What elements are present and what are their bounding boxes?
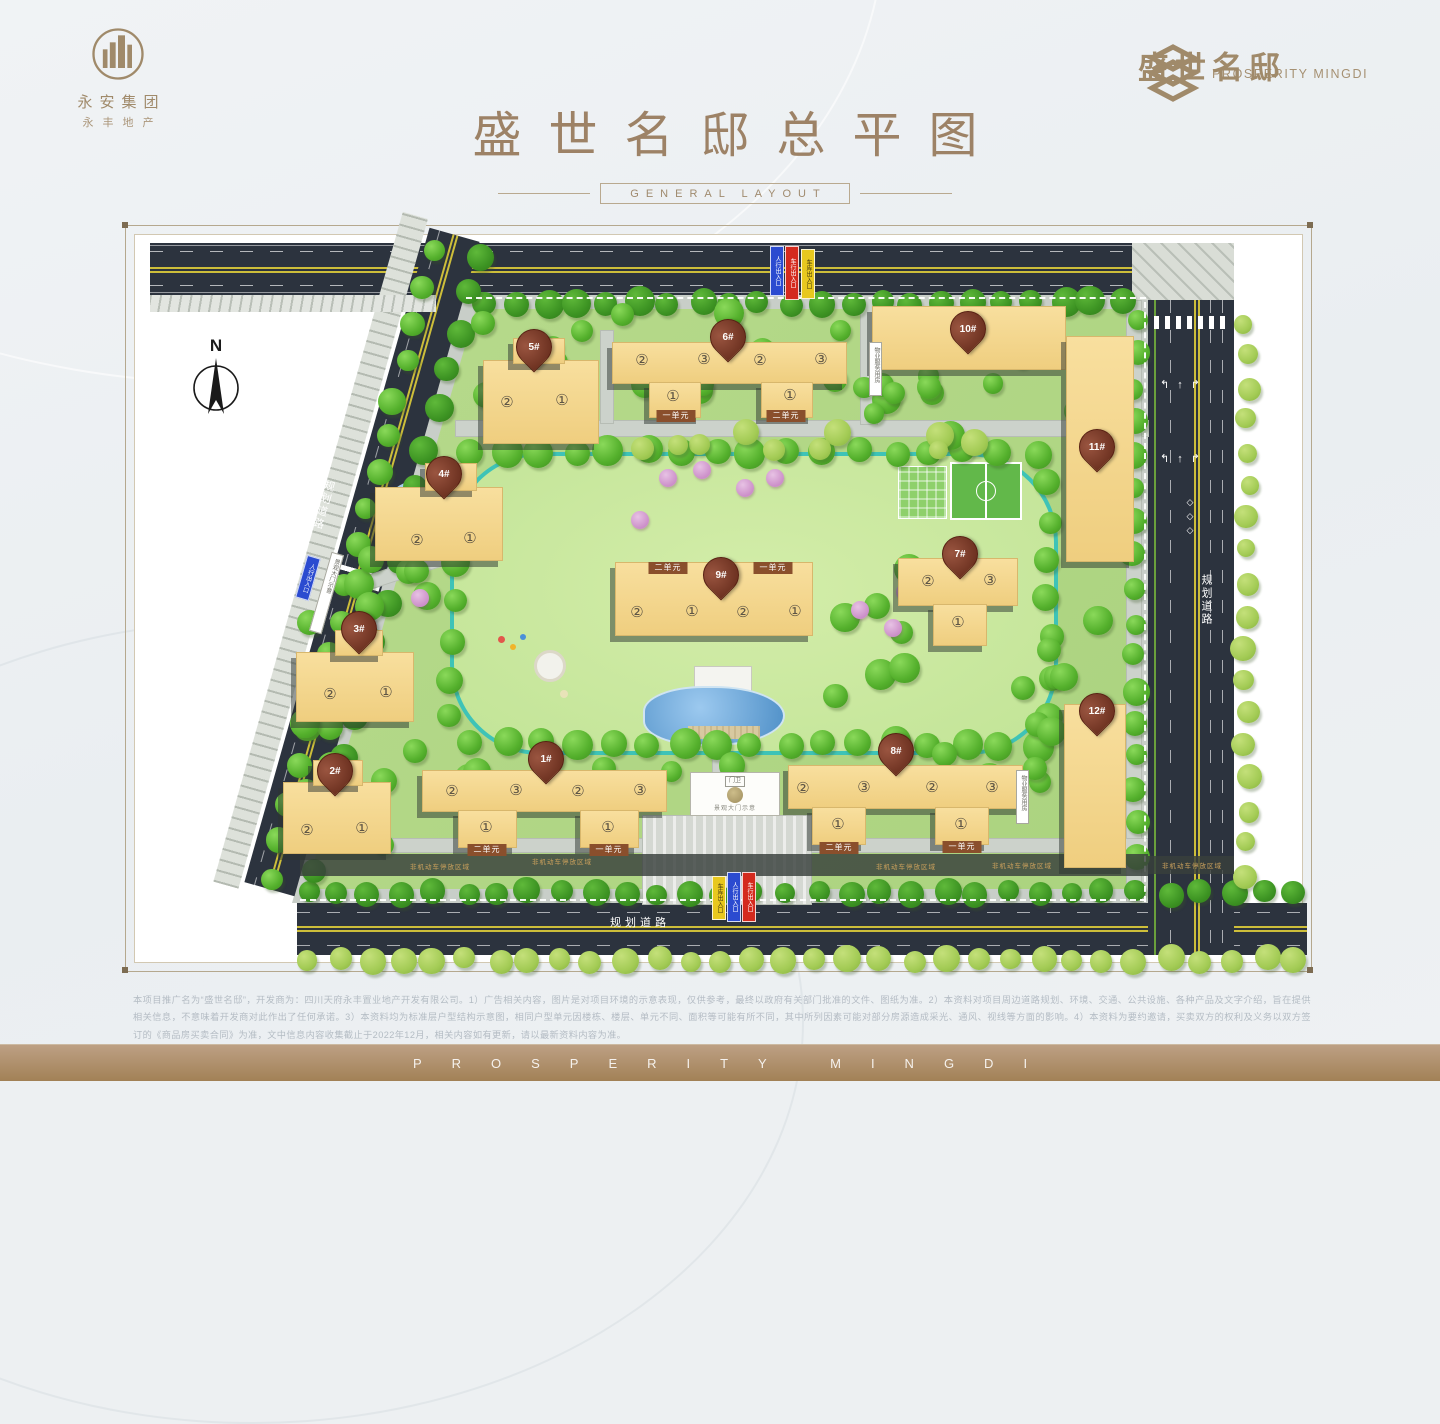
parking-band bbox=[300, 854, 1148, 876]
road-north bbox=[150, 243, 1132, 295]
internal-path bbox=[455, 420, 1149, 437]
compass-icon bbox=[186, 356, 246, 428]
frame-corner bbox=[122, 967, 128, 973]
playground-dot bbox=[520, 634, 526, 640]
lane-arrows: ↰↑↱ bbox=[1160, 378, 1208, 391]
building-circle-logo-icon bbox=[90, 26, 146, 82]
basketball-court bbox=[950, 462, 1022, 520]
title-block: 盛世名邸总平图 GENERAL LAYOUT bbox=[420, 96, 1030, 204]
boundary-dashed-line bbox=[1144, 302, 1146, 902]
internal-path bbox=[712, 747, 728, 819]
subtitle-row: GENERAL LAYOUT bbox=[420, 183, 1030, 204]
lane-diamonds: ◇◇◇ bbox=[1186, 498, 1196, 540]
intersection-paving bbox=[1132, 243, 1234, 300]
boundary-dashed-line bbox=[466, 297, 1146, 299]
wood-deck bbox=[688, 726, 760, 739]
playground-dot bbox=[498, 636, 505, 643]
sidewalk-hatch bbox=[150, 295, 436, 312]
internal-path bbox=[600, 330, 614, 424]
crosswalk bbox=[1154, 316, 1230, 329]
subtitle-line-left bbox=[498, 193, 590, 194]
disclaimer-text: 本项目推广名为“盛世名邸”，开发商为：四川天府永丰置业地产开发有限公司。1）广告… bbox=[133, 992, 1311, 1044]
subtitle-line-right bbox=[860, 193, 952, 194]
footer-bar-text: PROSPERITY MINGDI bbox=[383, 1056, 1057, 1071]
footer-bar: PROSPERITY MINGDI bbox=[0, 1044, 1440, 1081]
north-label: N bbox=[180, 336, 252, 356]
lane-arrows: ↰↑↱ bbox=[1160, 452, 1208, 465]
developer-name: 永安集团 bbox=[58, 91, 178, 112]
internal-path bbox=[1126, 300, 1142, 902]
project-logo: 盛世名邸 PROSPERITY MINGDI bbox=[1146, 42, 1406, 104]
kids-playground bbox=[898, 466, 947, 519]
frame-corner bbox=[122, 222, 128, 228]
page-title: 盛世名邸总平图 bbox=[420, 96, 1030, 167]
developer-logo: 永安集团 永丰地产 bbox=[58, 26, 178, 130]
fountain bbox=[534, 650, 566, 682]
playground-dot bbox=[510, 644, 516, 650]
boundary-dashed-line bbox=[300, 899, 1146, 901]
north-compass: N bbox=[180, 336, 252, 432]
developer-subname: 永丰地产 bbox=[58, 114, 178, 130]
page-subtitle: GENERAL LAYOUT bbox=[600, 183, 849, 204]
frame-corner bbox=[1307, 222, 1313, 228]
internal-path bbox=[860, 295, 878, 425]
parking-band bbox=[1148, 856, 1234, 874]
poster: 永安集团 永丰地产 盛世名邸总平图 GENERAL LAYOUT 盛世名邸 PR… bbox=[0, 0, 1440, 1080]
playground-dot bbox=[560, 690, 568, 698]
frame-corner bbox=[1307, 967, 1313, 973]
project-name-cn: 盛世名邸 bbox=[1138, 43, 1286, 88]
